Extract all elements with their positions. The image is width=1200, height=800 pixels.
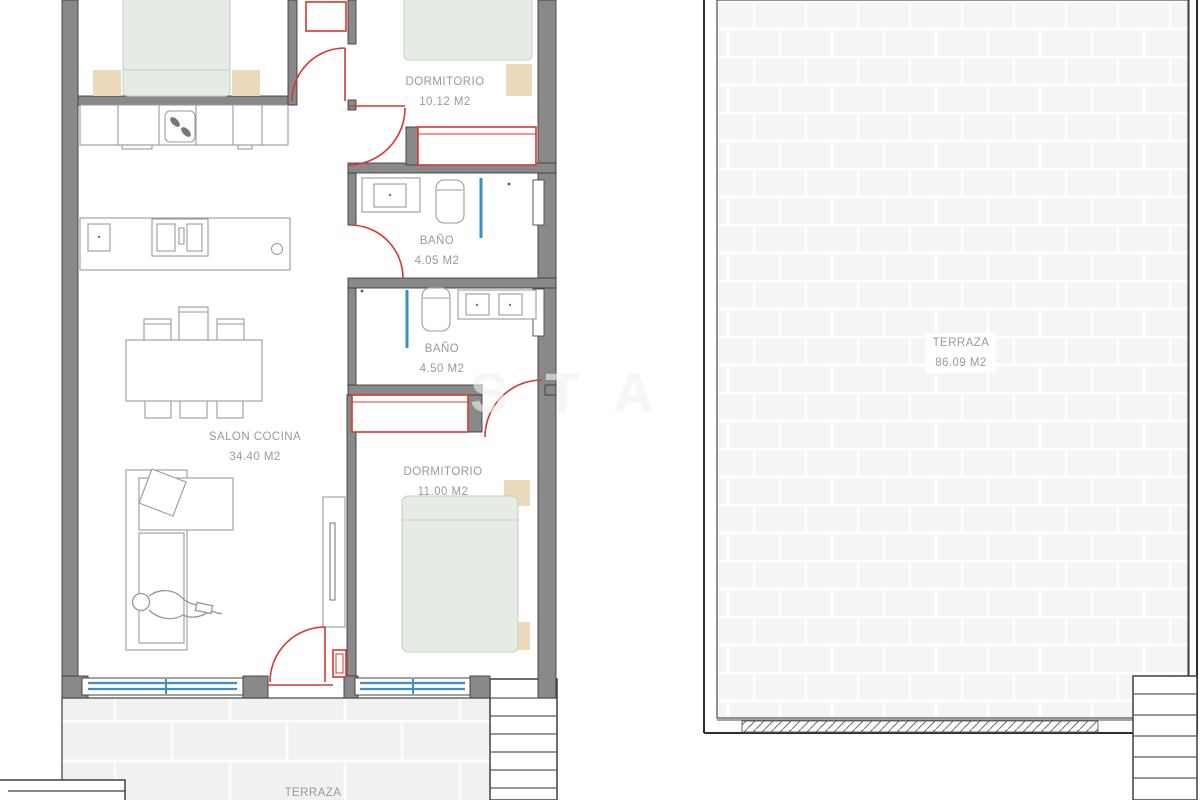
room-label-bano-1: BAÑO 4.05 M2 <box>415 231 460 271</box>
kitchen-counter <box>80 105 288 149</box>
tv-stand <box>323 497 345 627</box>
room-label-terraza-main: TERRAZA 86.09 M2 <box>926 333 997 373</box>
room-name: DORMITORIO <box>405 72 484 92</box>
room-label-dormitorio-1: DORMITORIO 10.12 M2 <box>405 72 484 112</box>
room-name: SALON COCINA <box>209 427 301 447</box>
room-area: 34.40 M2 <box>209 447 301 467</box>
room-area: 11.00 M2 <box>403 482 482 502</box>
watermark: STA <box>470 360 850 425</box>
terrace-lower-structure <box>0 698 490 800</box>
floor-plan-page: DORMITORIO 10.12 M2 BAÑO 4.05 M2 BAÑO 4.… <box>0 0 1200 800</box>
room-label-salon-cocina: SALON COCINA 34.40 M2 <box>209 427 301 467</box>
room-area: 86.09 M2 <box>926 353 997 373</box>
bedroom2-furniture <box>352 395 530 652</box>
stairs-right <box>1133 676 1197 800</box>
room-name: TERRAZA <box>926 333 997 353</box>
room-area: 4.50 M2 <box>420 359 465 379</box>
window-bottom-left <box>82 678 243 695</box>
dining-set <box>126 307 262 418</box>
room-area: 10.12 M2 <box>405 92 484 112</box>
sofa <box>126 469 233 650</box>
bathroom1-fixtures <box>362 178 510 238</box>
room-name: DORMITORIO <box>403 462 482 482</box>
room-name: TERRAZA <box>285 783 342 800</box>
room-label-terraza-lower: TERRAZA <box>285 783 342 800</box>
bedroom-top-left-furniture <box>93 0 260 96</box>
room-label-bano-2: BAÑO 4.50 M2 <box>420 339 465 379</box>
room-name: BAÑO <box>415 231 460 251</box>
kitchen-island <box>80 218 290 270</box>
window-bottom-right <box>355 678 470 695</box>
room-area: 4.05 M2 <box>415 251 460 271</box>
room-label-dormitorio-2: DORMITORIO 11.00 M2 <box>403 462 482 502</box>
room-name: BAÑO <box>420 339 465 359</box>
